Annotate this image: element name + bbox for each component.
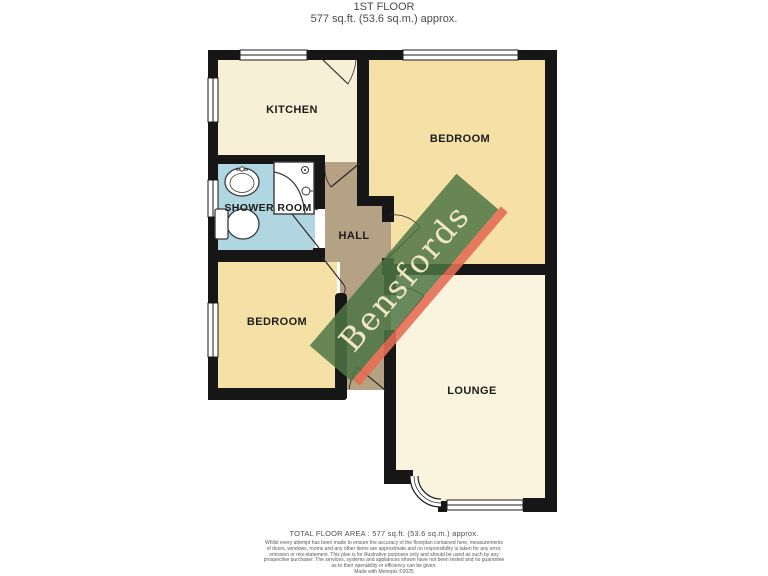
room-label-hall: HALL [339, 230, 370, 242]
room-label-shower-room: SHOWER ROOM [224, 202, 311, 214]
footer: TOTAL FLOOR AREA : 577 sq.ft. (53.6 sq.m… [0, 529, 768, 576]
wall-shower-right-upper [313, 155, 325, 209]
wall-shower-bedroom-divider [208, 250, 323, 262]
shower-head-dot [304, 169, 306, 171]
wall-bedroom-left-bottom [208, 388, 347, 400]
wall-right [545, 50, 557, 512]
sink-tap [240, 167, 244, 171]
wall-lounge-bay-corner [384, 470, 413, 484]
shower-control [302, 187, 310, 195]
room-label-kitchen: KITCHEN [266, 104, 318, 116]
metropix-credit: Made with Metropix ©2025 [0, 570, 768, 576]
wall-kitchen-bedroom-divider [357, 50, 369, 206]
disclaimer: Whilst every attempt has been made to en… [0, 541, 768, 576]
room-label-lounge: LOUNGE [447, 385, 496, 397]
wall-bedroom-door-jamb-top [382, 196, 394, 222]
room-label-bedroom-left: BEDROOM [247, 316, 307, 328]
floorplan-page: { "title": { "floor": "1ST FLOOR", "area… [0, 0, 768, 576]
room-label-bedroom-right: BEDROOM [430, 133, 490, 145]
wall-lounge-bottom-right [523, 498, 557, 512]
sink-symbol [225, 167, 259, 196]
total-floor-area: TOTAL FLOOR AREA : 577 sq.ft. (53.6 sq.m… [0, 529, 768, 538]
